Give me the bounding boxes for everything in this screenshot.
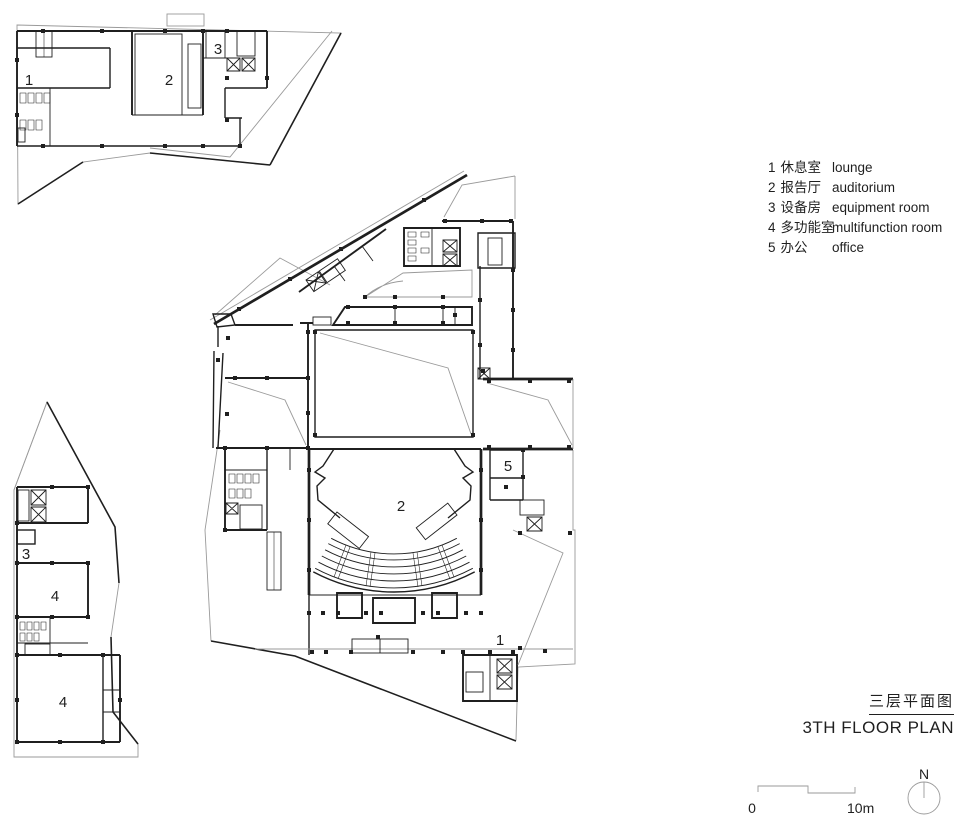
north-label: N bbox=[919, 766, 929, 782]
legend-en: auditorium bbox=[832, 178, 895, 198]
legend-num: 4 bbox=[768, 218, 776, 238]
room-label-lower-multifunction-lower: 4 bbox=[59, 694, 67, 711]
scale-bar-end-label: 10m bbox=[847, 800, 874, 816]
plan-title-zh: 三层平面图 bbox=[869, 690, 954, 715]
plan-title-en: 3TH FLOOR PLAN bbox=[802, 718, 954, 738]
legend-en: equipment room bbox=[832, 198, 930, 218]
room-label-upper-auditorium: 2 bbox=[165, 72, 173, 89]
legend-zh: 报告厅 bbox=[781, 180, 822, 195]
legend-num: 3 bbox=[768, 198, 776, 218]
room-label-main-auditorium: 2 bbox=[397, 498, 405, 515]
room-label-lower-equipment: 3 bbox=[22, 546, 30, 563]
north-arrow-icon: N bbox=[908, 766, 940, 814]
legend-en: multifunction room bbox=[832, 218, 942, 238]
legend-en: lounge bbox=[832, 158, 873, 178]
main-floor-plan: 2 5 1 bbox=[205, 171, 575, 741]
legend-zh: 办公 bbox=[781, 240, 808, 255]
legend-en: office bbox=[832, 238, 864, 258]
room-label-upper-equipment: 3 bbox=[214, 41, 222, 58]
upper-fragment-plan: 1 2 3 bbox=[15, 14, 341, 204]
legend-item: 1休息室 lounge bbox=[768, 158, 835, 178]
legend-zh: 多功能室 bbox=[781, 220, 835, 235]
legend-item: 4多功能室 multifunction room bbox=[768, 218, 835, 238]
legend-zh: 设备房 bbox=[781, 200, 822, 215]
legend-item: 5办公 office bbox=[768, 238, 835, 258]
room-label-main-office: 5 bbox=[504, 458, 512, 475]
title-block: 三层平面图 3TH FLOOR PLAN bbox=[802, 690, 954, 738]
legend-num: 2 bbox=[768, 178, 776, 198]
room-label-upper-lounge: 1 bbox=[25, 72, 33, 89]
legend-num: 1 bbox=[768, 158, 776, 178]
lower-fragment-plan: 3 4 4 bbox=[14, 402, 138, 757]
scale-bar: 0 10m bbox=[748, 786, 874, 816]
legend: 1休息室 lounge 2报告厅 auditorium 3设备房 equipme… bbox=[768, 158, 835, 258]
legend-item: 2报告厅 auditorium bbox=[768, 178, 835, 198]
legend-item: 3设备房 equipment room bbox=[768, 198, 835, 218]
legend-num: 5 bbox=[768, 238, 776, 258]
scale-bar-start-label: 0 bbox=[748, 800, 756, 816]
legend-zh: 休息室 bbox=[781, 160, 822, 175]
room-label-main-lounge: 1 bbox=[496, 632, 504, 649]
room-label-lower-multifunction-upper: 4 bbox=[51, 588, 59, 605]
